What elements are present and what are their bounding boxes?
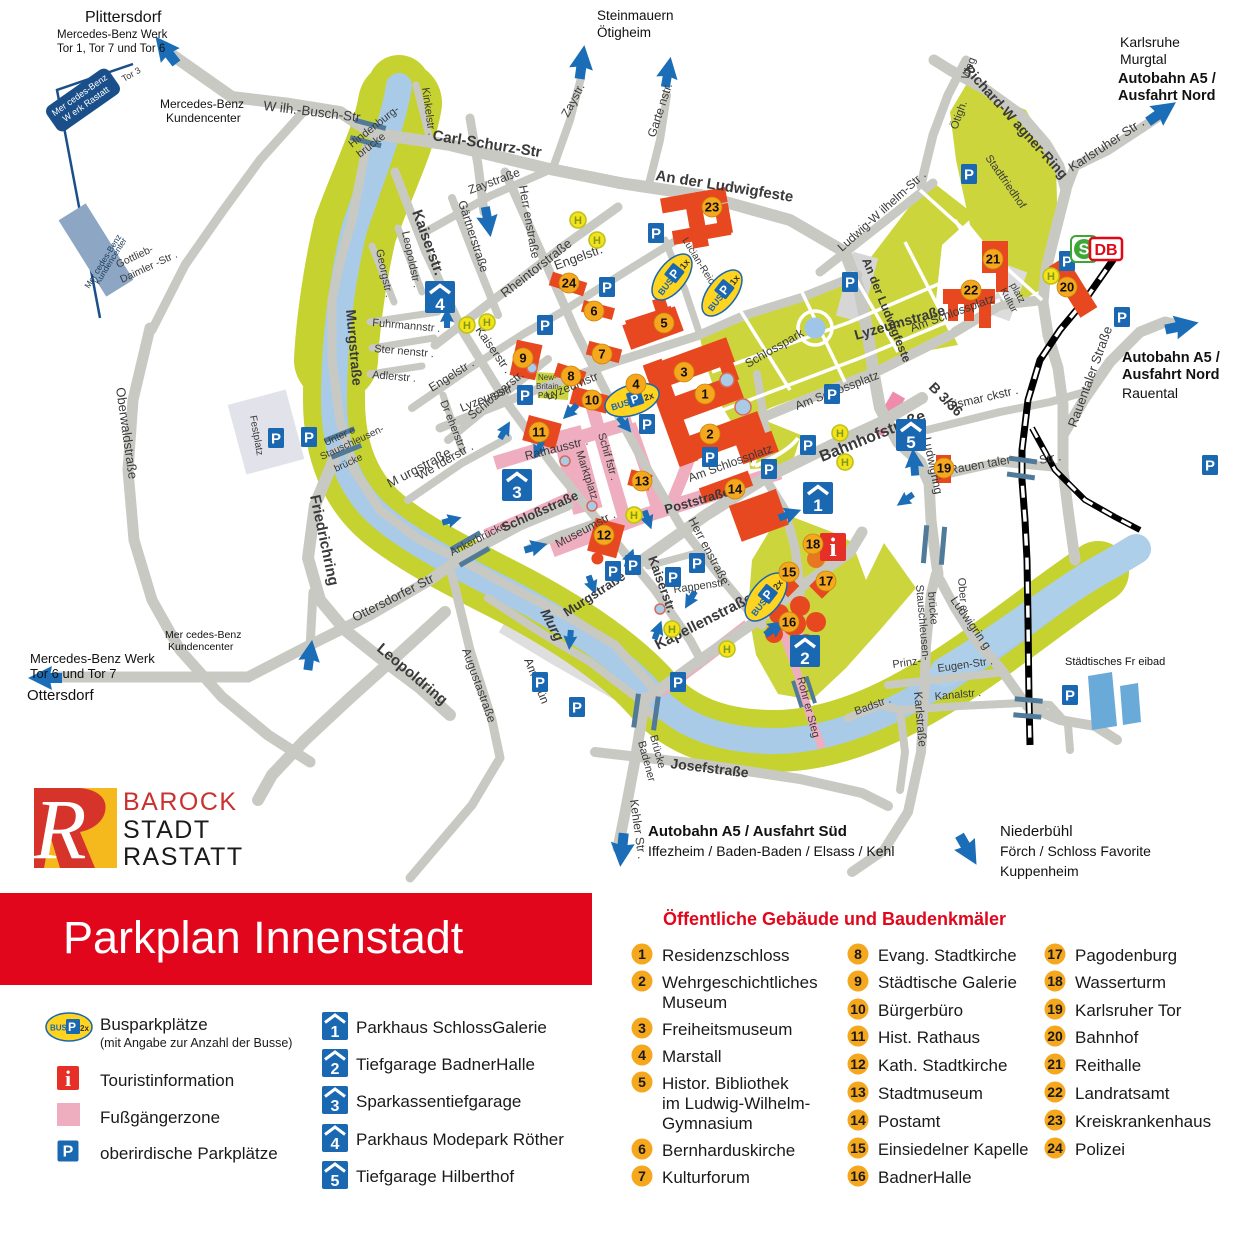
svg-text:Tor 6 und Tor 7: Tor 6 und Tor 7	[30, 666, 116, 681]
svg-text:22: 22	[1047, 1084, 1063, 1100]
svg-text:Steinmauern: Steinmauern	[597, 8, 674, 23]
svg-text:P: P	[68, 1020, 76, 1034]
svg-text:5: 5	[331, 1173, 340, 1190]
svg-text:7: 7	[638, 1168, 646, 1184]
svg-text:Evang. Stadtkirche: Evang. Stadtkirche	[878, 947, 1017, 965]
svg-text:Städtisches Fr eibad: Städtisches Fr eibad	[1065, 656, 1165, 668]
svg-text:11: 11	[532, 425, 546, 440]
svg-text:Murgtal: Murgtal	[1120, 51, 1167, 67]
svg-text:Reithalle: Reithalle	[1075, 1056, 1141, 1075]
svg-text:im Ludwig-Wilhelm-: im Ludwig-Wilhelm-	[662, 1094, 810, 1113]
svg-text:R: R	[33, 781, 87, 877]
svg-text:2: 2	[638, 973, 646, 989]
svg-text:Pagodenburg: Pagodenburg	[1075, 946, 1177, 965]
svg-text:23: 23	[705, 200, 719, 215]
svg-text:Freiheitsmuseum: Freiheitsmuseum	[662, 1020, 792, 1039]
svg-text:5: 5	[906, 433, 915, 452]
svg-text:RASTATT: RASTATT	[123, 843, 244, 871]
svg-text:14: 14	[850, 1112, 866, 1128]
svg-text:Kreiskrankenhaus: Kreiskrankenhaus	[1075, 1112, 1211, 1131]
svg-text:Ottersdorf: Ottersdorf	[27, 687, 95, 704]
svg-text:Karlsruhe: Karlsruhe	[1120, 34, 1180, 50]
svg-text:Busparkplätze: Busparkplätze	[100, 1015, 208, 1034]
svg-text:8: 8	[567, 369, 574, 384]
svg-text:BUS: BUS	[50, 1024, 68, 1033]
svg-text:23: 23	[1047, 1112, 1063, 1128]
svg-text:21: 21	[986, 252, 1000, 267]
svg-text:2: 2	[800, 649, 809, 668]
svg-text:Öffentliche Gebäude und Bauden: Öffentliche Gebäude und Baudenkmäler	[663, 909, 1006, 929]
svg-text:Parkhaus Modepark Röther: Parkhaus Modepark Röther	[356, 1130, 564, 1149]
svg-text:16: 16	[850, 1168, 866, 1184]
svg-text:6: 6	[590, 304, 597, 319]
svg-text:20: 20	[1047, 1028, 1063, 1044]
svg-text:Residenzschloss: Residenzschloss	[662, 946, 790, 965]
svg-text:i: i	[829, 533, 836, 562]
svg-text:3: 3	[680, 365, 687, 380]
svg-text:Parkhaus SchlossGalerie: Parkhaus SchlossGalerie	[356, 1018, 547, 1037]
svg-text:Touristinformation: Touristinformation	[100, 1071, 234, 1090]
svg-text:BadnerHalle: BadnerHalle	[878, 1168, 972, 1187]
svg-text:Park: Park	[538, 391, 555, 400]
svg-text:15: 15	[850, 1140, 866, 1156]
svg-text:15: 15	[782, 565, 796, 580]
svg-text:20: 20	[1060, 280, 1074, 295]
svg-text:Ausfahrt Nord: Ausfahrt Nord	[1122, 367, 1219, 383]
svg-text:Polizei: Polizei	[1075, 1140, 1125, 1159]
svg-text:18: 18	[806, 537, 820, 552]
svg-text:9: 9	[854, 973, 862, 989]
svg-text:Kath. Stadtkirche: Kath. Stadtkirche	[878, 1056, 1007, 1075]
svg-text:DB: DB	[1094, 242, 1117, 259]
svg-text:Bernharduskirche: Bernharduskirche	[662, 1141, 795, 1160]
svg-text:5: 5	[660, 316, 667, 331]
svg-text:10: 10	[585, 393, 599, 408]
svg-text:4: 4	[435, 295, 445, 314]
svg-text:Autobahn A5 /: Autobahn A5 /	[1122, 350, 1220, 366]
svg-text:Autobahn A5 / Ausfahrt Süd: Autobahn A5 / Ausfahrt Süd	[648, 823, 847, 840]
svg-text:Tiefgarage BadnerHalle: Tiefgarage BadnerHalle	[356, 1055, 535, 1074]
svg-text:Tor 1, Tor 7 und Tor 6: Tor 1, Tor 7 und Tor 6	[57, 43, 165, 55]
svg-text:Mercedes-Benz Werk: Mercedes-Benz Werk	[57, 29, 168, 41]
svg-text:6: 6	[638, 1141, 646, 1157]
svg-text:Landratsamt: Landratsamt	[1075, 1084, 1170, 1103]
svg-text:4: 4	[632, 377, 640, 392]
svg-text:Parkplan Innenstadt: Parkplan Innenstadt	[63, 912, 464, 963]
svg-text:Kundencenter: Kundencenter	[168, 641, 234, 653]
svg-text:Förch / Schloss Favorite: Förch / Schloss Favorite	[1000, 843, 1151, 859]
svg-text:Kundencenter: Kundencenter	[166, 111, 241, 125]
svg-text:3: 3	[331, 1098, 340, 1115]
svg-text:13: 13	[635, 474, 649, 489]
svg-text:14: 14	[728, 482, 743, 497]
svg-text:9: 9	[519, 351, 526, 366]
svg-text:24: 24	[562, 276, 577, 291]
svg-text:5: 5	[638, 1074, 646, 1090]
svg-text:8: 8	[854, 946, 862, 962]
svg-text:Ötigheim: Ötigheim	[597, 25, 651, 40]
svg-text:BAROCK: BAROCK	[123, 788, 238, 816]
svg-text:1: 1	[701, 387, 708, 402]
svg-text:12: 12	[850, 1056, 866, 1072]
svg-text:Museum: Museum	[662, 993, 727, 1012]
svg-text:Gymnasium: Gymnasium	[662, 1114, 753, 1133]
svg-text:17: 17	[1047, 946, 1063, 962]
svg-text:Histor. Bibliothek: Histor. Bibliothek	[662, 1074, 789, 1093]
svg-text:oberirdische Parkplätze: oberirdische Parkplätze	[100, 1144, 278, 1163]
svg-text:7: 7	[598, 347, 605, 362]
svg-text:Stadtmuseum: Stadtmuseum	[878, 1084, 983, 1103]
svg-text:Britain-: Britain-	[536, 382, 562, 391]
svg-text:Wehrgeschichtliches: Wehrgeschichtliches	[662, 973, 818, 992]
svg-text:3: 3	[512, 483, 521, 502]
svg-text:Sparkassentiefgarage: Sparkassentiefgarage	[356, 1092, 521, 1111]
svg-text:10: 10	[850, 1001, 866, 1017]
svg-text:Niederbühl: Niederbühl	[1000, 823, 1073, 840]
svg-text:18: 18	[1047, 973, 1063, 989]
svg-text:Bahnhof: Bahnhof	[1075, 1028, 1139, 1047]
svg-text:Bürgerbüro: Bürgerbüro	[878, 1001, 963, 1020]
svg-text:Kuppenheim: Kuppenheim	[1000, 863, 1079, 879]
svg-text:1: 1	[813, 496, 822, 515]
svg-text:Mercedes-Benz Werk: Mercedes-Benz Werk	[30, 651, 155, 666]
svg-text:12: 12	[597, 528, 611, 543]
svg-text:3: 3	[638, 1020, 646, 1036]
svg-text:Ausfahrt Nord: Ausfahrt Nord	[1118, 88, 1215, 104]
svg-text:S: S	[1079, 242, 1090, 259]
svg-text:19: 19	[937, 461, 951, 476]
svg-text:Marstall: Marstall	[662, 1047, 722, 1066]
svg-text:2x: 2x	[80, 1024, 89, 1033]
svg-text:1: 1	[331, 1024, 340, 1041]
svg-text:24: 24	[1047, 1140, 1063, 1156]
svg-text:(mit Angabe zur Anzahl der Bus: (mit Angabe zur Anzahl der Busse)	[100, 1036, 292, 1050]
svg-text:2: 2	[331, 1061, 340, 1078]
svg-text:Fußgängerzone: Fußgängerzone	[100, 1108, 220, 1127]
svg-text:Hist. Rathaus: Hist. Rathaus	[878, 1028, 980, 1047]
svg-text:Einsiedelner Kapelle: Einsiedelner Kapelle	[878, 1141, 1028, 1159]
svg-text:i: i	[65, 1066, 71, 1091]
svg-text:16: 16	[782, 615, 796, 630]
svg-text:STADT: STADT	[123, 816, 211, 844]
svg-text:21: 21	[1047, 1056, 1063, 1072]
svg-text:New-: New-	[538, 373, 557, 382]
svg-text:Mercedes-Benz: Mercedes-Benz	[160, 97, 244, 111]
svg-text:Kulturforum: Kulturforum	[662, 1168, 750, 1187]
svg-text:13: 13	[850, 1084, 866, 1100]
svg-text:Tiefgarage Hilberthof: Tiefgarage Hilberthof	[356, 1167, 514, 1186]
svg-text:P: P	[63, 1144, 74, 1161]
svg-text:1: 1	[638, 946, 646, 962]
svg-text:Rauental: Rauental	[1122, 385, 1178, 401]
svg-text:Autobahn A5 /: Autobahn A5 /	[1118, 71, 1216, 87]
svg-text:4: 4	[638, 1047, 646, 1063]
svg-text:Karlsruher Tor: Karlsruher Tor	[1075, 1001, 1182, 1020]
svg-text:Postamt: Postamt	[878, 1112, 941, 1131]
svg-text:Städtische Galerie: Städtische Galerie	[878, 973, 1017, 992]
svg-text:19: 19	[1047, 1001, 1063, 1017]
svg-text:4: 4	[331, 1136, 340, 1153]
svg-text:Mer cedes-Benz: Mer cedes-Benz	[165, 629, 241, 641]
svg-text:Iffezheim / Baden-Baden / Elsa: Iffezheim / Baden-Baden / Elsass / Kehl	[648, 843, 894, 859]
svg-text:22: 22	[964, 283, 978, 298]
svg-text:11: 11	[851, 1028, 866, 1044]
svg-text:Plittersdorf: Plittersdorf	[85, 9, 162, 26]
svg-text:Wasserturm: Wasserturm	[1075, 973, 1166, 992]
svg-text:17: 17	[819, 574, 833, 589]
svg-text:2: 2	[706, 427, 713, 442]
